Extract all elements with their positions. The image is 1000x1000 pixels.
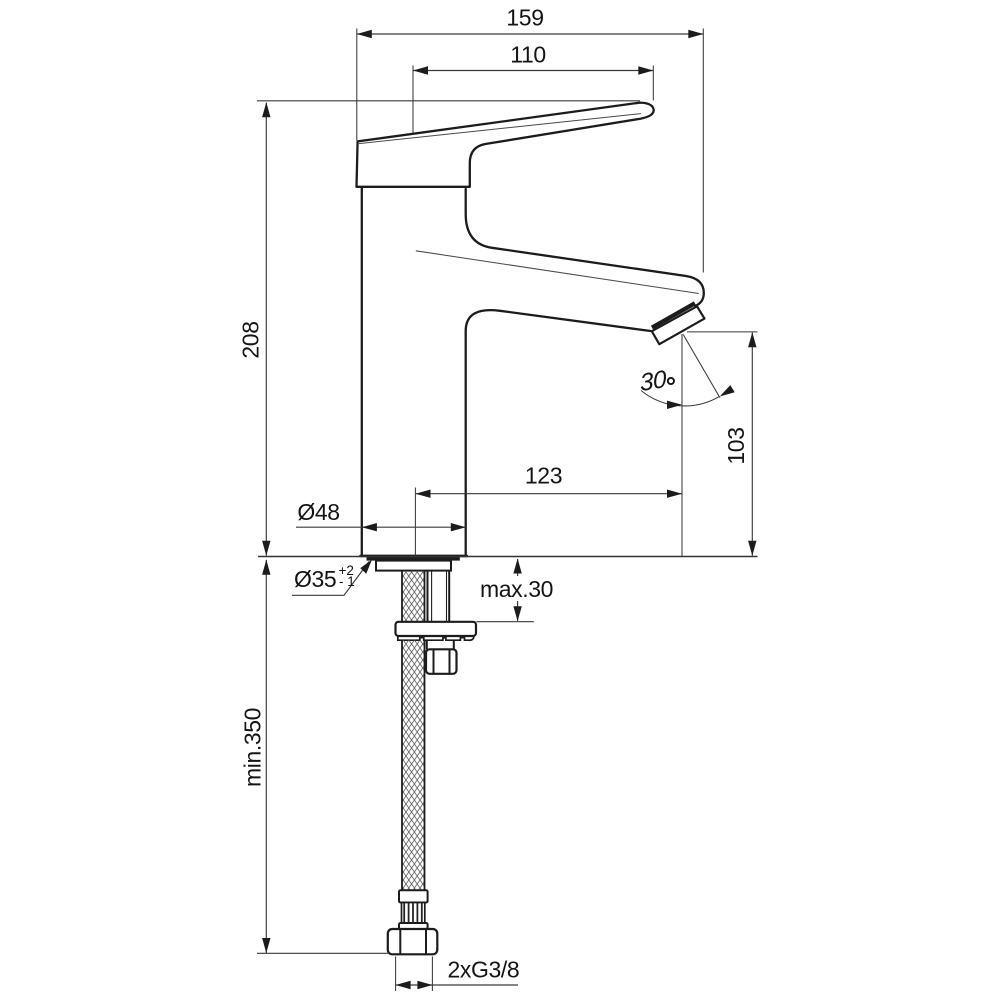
- svg-text:Ø35: Ø35: [294, 566, 336, 592]
- svg-text:208: 208: [238, 321, 264, 358]
- svg-text:103: 103: [723, 427, 749, 464]
- svg-text:min.350: min.350: [240, 708, 266, 787]
- svg-text:Ø48: Ø48: [297, 499, 339, 525]
- svg-text:159: 159: [506, 5, 543, 31]
- svg-text:30: 30: [639, 366, 668, 397]
- svg-text:2xG3/8: 2xG3/8: [448, 956, 520, 982]
- svg-text:max.30: max.30: [480, 576, 553, 602]
- svg-text:- 1: - 1: [339, 574, 355, 589]
- svg-text:110: 110: [510, 42, 545, 68]
- svg-text:123: 123: [525, 462, 562, 488]
